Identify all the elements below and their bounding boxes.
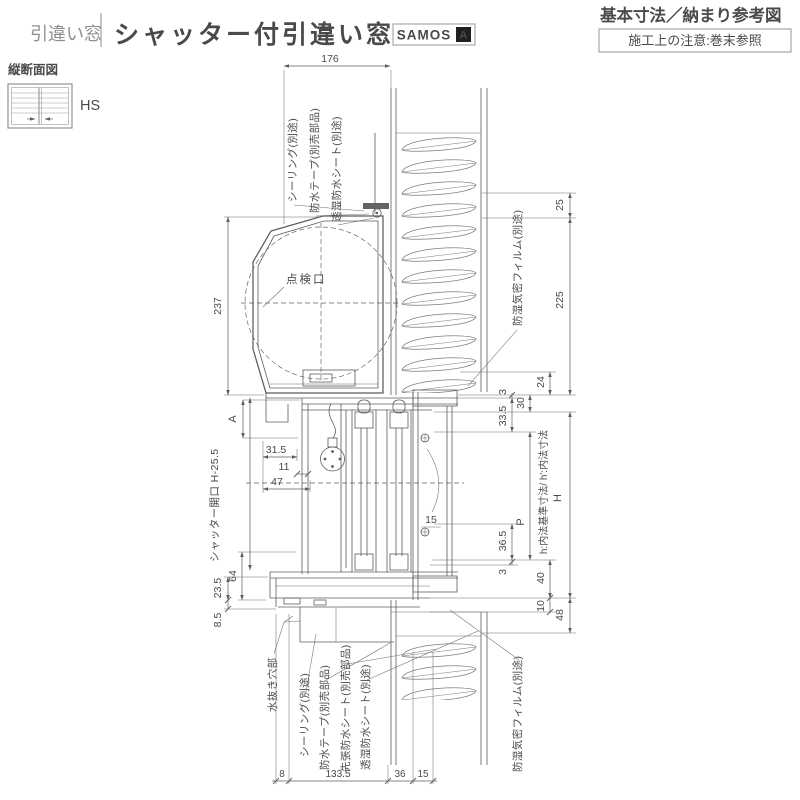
inner-dimension-note: h:内法基準寸法/ h':内法寸法 <box>537 430 550 554</box>
label-drain-hole: 水抜き穴部 <box>266 658 279 713</box>
dim-33-5: 33.5 <box>497 406 509 427</box>
dim-64: 64 <box>227 570 239 582</box>
dim-25: 25 <box>554 199 566 211</box>
dim-133-5: 133.5 <box>325 769 350 780</box>
dim-10: 10 <box>535 600 547 612</box>
pitch-mark-P: P <box>515 518 527 525</box>
label-waterproof-tape-bottom: 防水テープ(別売部品) <box>318 665 331 770</box>
wall-section-upper <box>375 88 487 395</box>
section-type-label: 縦断面図 <box>8 62 58 77</box>
dim-8-5: 8.5 <box>212 613 224 628</box>
construction-note: 施工上の注意:巻末参照 <box>628 33 762 48</box>
dim-36: 36 <box>394 769 406 780</box>
dim-36-5: 36.5 <box>497 531 509 552</box>
dim-23-5: 23.5 <box>212 578 224 599</box>
window-thumbnail <box>8 84 72 128</box>
dim-3-bottom: 3 <box>497 569 509 575</box>
wall-section-lower <box>391 600 487 765</box>
window-type-code: HS <box>80 98 100 114</box>
dim-40: 40 <box>535 572 547 584</box>
screw-symbol-bottom <box>421 528 429 536</box>
dim-3-top: 3 <box>497 389 509 395</box>
annotations-bottom: 水抜き穴部 シーリング(別途) 防水テープ(別売部品) 先張防水シート(別売部品… <box>266 610 524 772</box>
page-subtitle: 基本寸法／納まり参考図 <box>600 5 782 25</box>
section-mark-a: A <box>227 415 239 423</box>
dim-15-bottom: 15 <box>417 769 429 780</box>
label-vapor-film-top: 防湿気密フィルム(別途) <box>511 210 524 326</box>
mounting-bracket <box>363 203 389 209</box>
insulation-upper <box>400 133 478 393</box>
dim-30: 30 <box>515 397 527 409</box>
dim-8: 8 <box>279 769 285 780</box>
insulation-lower <box>400 636 478 700</box>
swing-arc <box>427 449 439 512</box>
technical-drawing: 176 シーリング(別途) 防水テープ(別売部品) 透湿防水シート(別途) 防湿… <box>209 53 576 784</box>
sash-section: 15 <box>246 390 464 600</box>
dim-11: 11 <box>279 461 290 473</box>
series-badge: SAMOS A <box>393 24 475 45</box>
note-box: 施工上の注意:巻末参照 <box>599 29 791 52</box>
head-frame <box>266 393 458 574</box>
label-sealing-bottom: シーリング(別途) <box>298 673 311 757</box>
series-name: SAMOS <box>397 28 452 43</box>
inner-sash-panel <box>387 400 411 572</box>
dim-48: 48 <box>554 609 566 621</box>
page-title: シャッター付引違い窓 <box>114 20 394 49</box>
dim-225: 225 <box>554 291 566 309</box>
label-shutter-opening: シャッター開口 H-25.5 <box>209 448 221 562</box>
label-waterproof-tape-top: 防水テープ(別売部品) <box>308 108 321 213</box>
window-category-label: 引違い窓 <box>30 24 102 44</box>
dim-31-5: 31.5 <box>266 444 287 456</box>
section-key: 縦断面図 HS <box>8 62 100 128</box>
outer-sash-panel <box>352 400 376 572</box>
label-vapor-film-bottom: 防湿気密フィルム(別途) <box>511 656 524 772</box>
label-breathable-sheet-bottom: 透湿防水シート(別途) <box>359 664 372 770</box>
label-breathable-sheet-top: 透湿防水シート(別途) <box>330 116 343 222</box>
dim-176: 176 <box>321 53 339 65</box>
aluminum-mark: A <box>460 30 468 42</box>
shutter-box: 点検口 <box>241 216 401 393</box>
catalog-page: 引違い窓 シャッター付引違い窓 SAMOS A 基本寸法／納まり参考図 施工上の… <box>0 0 800 800</box>
sill-section <box>270 572 458 642</box>
drain-hole-slot <box>284 598 300 604</box>
dim-24: 24 <box>535 376 547 388</box>
screw-symbol-top <box>421 434 429 442</box>
interior-casing <box>413 390 457 600</box>
page-header: 引違い窓 シャッター付引違い窓 SAMOS A 基本寸法／納まり参考図 施工上の… <box>30 5 791 52</box>
label-sealing-top: シーリング(別途) <box>286 118 299 202</box>
label-inspection-port: 点検口 <box>286 272 327 286</box>
dim-47: 47 <box>271 476 283 488</box>
dim-237: 237 <box>212 297 224 315</box>
height-mark-H: H <box>552 494 564 502</box>
